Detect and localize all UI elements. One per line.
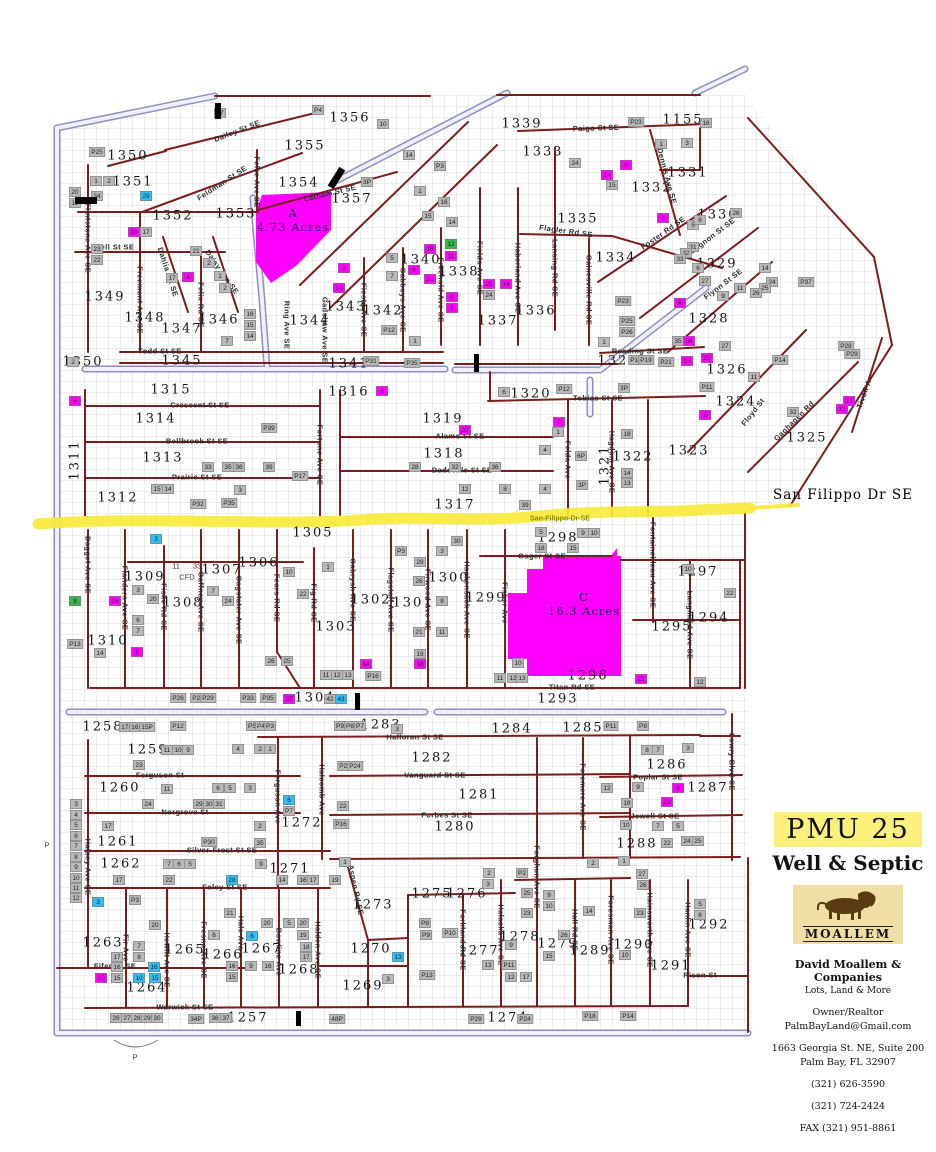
block-label: 1334: [595, 251, 636, 266]
lot-marker: 15: [567, 543, 579, 553]
lot-marker: 8: [436, 596, 448, 606]
lot-marker: P2: [516, 868, 528, 878]
lot-marker: 18: [535, 543, 547, 553]
block-label: 1314: [135, 412, 176, 427]
street-label: Halcomb Ave: [318, 764, 327, 815]
lot-marker: 3P: [618, 383, 630, 393]
block-label: 1316: [328, 385, 369, 400]
lot-marker: 12: [459, 484, 471, 494]
lot-marker: 5: [283, 918, 295, 928]
lot-marker: 23: [634, 908, 646, 918]
lot-marker: 6: [446, 292, 458, 302]
lot-marker: 39: [263, 462, 275, 472]
lot-marker: 3: [132, 585, 144, 595]
street-label: Hagdom Ave SE: [608, 431, 617, 494]
street-label: Forkland Rd SE: [459, 909, 468, 970]
lot-marker: 24: [222, 596, 234, 606]
lot-marker: P4: [312, 105, 324, 115]
block-label: 1352: [152, 209, 193, 224]
street-label: Ferguson Ave: [274, 770, 283, 824]
lot-marker: 9: [620, 160, 632, 170]
lot-marker: 9: [632, 782, 644, 792]
moallem-logo: MOALLEM: [793, 885, 903, 944]
lot-marker: 24: [483, 290, 495, 300]
block-label: 1312: [97, 491, 138, 506]
lot-marker: 14: [244, 331, 256, 341]
lot-marker: 18: [621, 429, 633, 439]
map-note: 33: [193, 562, 201, 571]
street-label: Fears Rd SE: [273, 574, 282, 623]
lot-marker: P9: [420, 930, 432, 940]
lot-marker: P12: [381, 325, 397, 335]
lot-marker: P35: [404, 358, 420, 368]
lot-marker: 11: [494, 673, 506, 683]
block-label: 1286: [646, 758, 687, 773]
logo-wordmark: MOALLEM: [803, 926, 893, 942]
street-label: Fortune Ave SE: [316, 425, 325, 486]
lot-marker: 4: [70, 810, 82, 820]
block-label: 1331: [667, 166, 708, 181]
street-label: Hall Rd SE: [571, 909, 580, 951]
lot-marker: 8: [499, 484, 511, 494]
lot-marker: P16: [333, 819, 349, 829]
lot-marker: 25: [483, 279, 495, 289]
street-label: Foremere Ave SE: [579, 763, 588, 831]
street-label: Gabrysh Ave SE: [349, 558, 358, 621]
lot-marker: 14: [94, 648, 106, 658]
street-label: Foresman Ave SE: [607, 895, 616, 964]
lot-marker: 18: [414, 659, 426, 669]
lot-marker: P31: [363, 356, 379, 366]
lot-marker: P25: [89, 147, 105, 157]
lot-marker: 3: [391, 724, 403, 734]
lot-marker: P7: [283, 806, 295, 816]
plat-map-page: 1356133911551350135513331351135413571331…: [0, 0, 936, 1152]
lot-marker: 10: [543, 901, 555, 911]
block-label: 1326: [706, 363, 747, 378]
sold-bar-marker: [296, 1011, 301, 1026]
phone-2: (321) 724-2424: [762, 1101, 934, 1112]
street-label: Gabboys Ave SE: [399, 267, 408, 332]
street-label: Felse Ave SE: [253, 156, 262, 207]
lot-marker: 34: [683, 336, 695, 346]
lot-marker: 3: [436, 546, 448, 556]
lot-marker: 26: [265, 656, 277, 666]
lot-marker: 9: [255, 859, 267, 869]
lot-marker: 12: [836, 404, 848, 414]
lot-marker: P24: [347, 761, 363, 771]
lot-marker: 20: [149, 920, 161, 930]
block-label: 1311: [68, 439, 83, 480]
san-filippo-onroad-label: San-Filippo-Dr-SE: [530, 516, 590, 523]
lot-marker: 18: [300, 942, 312, 952]
lot-marker: 9: [70, 862, 82, 872]
block-label: 1272: [281, 816, 322, 831]
street-label: Hainsworth Ave SE: [646, 892, 655, 967]
street-label: Lowry Blvd SE: [728, 733, 737, 791]
lot-marker: 16: [226, 961, 238, 971]
block-label: 1306: [238, 556, 279, 571]
lot-marker: 18: [128, 227, 140, 237]
lot-marker: 2: [254, 821, 266, 831]
lot-marker: 18: [621, 798, 633, 808]
street-label: Crescent St SE: [170, 401, 229, 410]
fax: FAX (321) 951-8861: [762, 1123, 934, 1134]
lot-marker: P13: [67, 639, 83, 649]
lot-marker: 5: [224, 783, 236, 793]
lot-marker: 21: [424, 274, 436, 284]
lot-marker: P3: [434, 161, 446, 171]
lot-marker: 1: [552, 427, 564, 437]
block-label: 1340: [400, 253, 441, 268]
lot-marker: 10: [377, 119, 389, 129]
company-name: David Moallem & Companies: [762, 958, 934, 984]
lot-marker: 7: [132, 626, 144, 636]
lot-marker: P3: [395, 546, 407, 556]
lot-marker: 24: [109, 596, 121, 606]
street-label: Fontainebleau Ave SE: [649, 522, 658, 608]
lot-marker: 17: [102, 821, 114, 831]
lot-marker: 9: [543, 890, 555, 900]
realtor-info-panel: PMU 25 Well & Septic MOALLEM David Moall…: [762, 812, 934, 1134]
lot-marker: P29: [844, 349, 860, 359]
block-label: 1351: [112, 175, 153, 190]
lot-marker: P30: [201, 837, 217, 847]
lot-marker: P7: [354, 721, 366, 731]
lot-marker: P37: [798, 277, 814, 287]
lot-marker: 7: [652, 745, 664, 755]
street-label: Fig Rd SE: [310, 583, 319, 622]
block-label: 1310: [87, 634, 128, 649]
lot-marker: 24: [569, 158, 581, 168]
lot-marker: 22: [297, 589, 309, 599]
street-label: Tobias St SE: [573, 394, 623, 403]
lot-marker: 6: [692, 263, 704, 273]
phone-1: (321) 626-3590: [762, 1079, 934, 1090]
lot-marker: 13: [482, 960, 494, 970]
street-label: Freehold Ave SE: [437, 257, 446, 322]
lot-marker: P14: [620, 1011, 636, 1021]
block-label: 1318: [423, 447, 464, 462]
lot-marker: 10: [588, 528, 600, 538]
well-septic-label: Well & Septic: [762, 851, 934, 875]
lot-marker: P25: [619, 316, 635, 326]
lot-marker: 18: [424, 244, 436, 254]
lot-marker: 10: [95, 973, 107, 983]
lot-marker: 28: [414, 557, 426, 567]
block-label: 1258: [82, 720, 123, 735]
block-label: 1293: [537, 692, 578, 707]
street-label: Lansing Rd SE: [551, 239, 560, 297]
lot-marker: 5: [70, 820, 82, 830]
lot-marker: 15P: [139, 722, 155, 732]
lot-marker: 21: [413, 627, 425, 637]
address-line1: 1663 Georgia St. NE, Suite 200: [762, 1043, 934, 1054]
pmu-title: PMU 25: [774, 812, 922, 847]
block-label: 1284: [491, 722, 532, 737]
block-label: 1305: [292, 526, 333, 541]
lot-marker: 30: [451, 536, 463, 546]
street-label: Halacka Ave SE: [497, 904, 506, 965]
lot-marker: 10: [70, 873, 82, 883]
lot-marker: P11: [603, 721, 618, 731]
lot-marker: 25: [521, 888, 533, 898]
block-label: 1353: [215, 207, 256, 222]
lot-marker: 11: [161, 784, 173, 794]
lot-marker: 4: [182, 272, 194, 282]
lot-marker: 2: [483, 868, 495, 878]
lot-marker: P23: [628, 117, 644, 127]
street-label: Fiesta Ave SE: [360, 283, 369, 337]
lot-marker: 13: [621, 478, 633, 488]
street-label: Rison St: [683, 971, 717, 980]
lot-marker: 10: [283, 567, 295, 577]
lot-marker: 5: [446, 303, 458, 313]
lot-marker: 15: [606, 180, 618, 190]
lot-marker: 21: [224, 908, 236, 918]
lot-marker: P23: [615, 296, 631, 306]
lot-marker: P11: [699, 382, 714, 392]
lot-marker: 9: [505, 940, 517, 950]
lot-marker: 28: [409, 462, 421, 472]
lot-marker: 6: [132, 615, 144, 625]
lot-marker: 14: [276, 875, 288, 885]
lot-marker: P26: [170, 693, 186, 703]
lot-marker: P10: [442, 928, 458, 938]
lot-marker: 11: [70, 883, 82, 893]
lot-marker: 14: [759, 263, 771, 273]
lot-marker: 8: [133, 952, 145, 962]
lot-marker: 39: [519, 500, 531, 510]
street-label: Haberland Ave SE: [514, 243, 523, 313]
lot-marker: P39: [261, 423, 277, 433]
lot-marker: P11: [501, 960, 516, 970]
lot-marker: 3: [657, 213, 669, 223]
block-label: 1354: [278, 176, 319, 191]
street-label: Ferguson St: [136, 771, 184, 780]
street-label: Fiske Rd SE: [160, 583, 169, 631]
lot-marker: 16: [438, 197, 450, 207]
block-label: 1355: [284, 139, 325, 154]
block-label: 1337: [477, 314, 518, 329]
lot-marker: 1: [414, 186, 426, 196]
block-label: 1328: [688, 312, 729, 327]
san-filippo-label: San Filippo Dr SE: [773, 487, 913, 503]
lot-marker: 22: [724, 588, 736, 598]
lot-marker: 27: [719, 341, 731, 351]
block-label: 1345: [161, 354, 202, 369]
block-label: 1335: [557, 212, 598, 227]
block-label: 1317: [434, 498, 475, 513]
lot-marker: 3P: [361, 177, 373, 187]
lot-marker: 1: [264, 744, 276, 754]
lot-marker: 15: [149, 973, 161, 983]
lot-marker: 9: [245, 961, 257, 971]
street-label: Flanders Ave SE: [121, 566, 130, 631]
lot-marker: 28: [226, 875, 238, 885]
lot-marker: 3: [234, 485, 246, 495]
lot-marker: 15: [422, 211, 434, 221]
owner-role: Owner/Realtor: [762, 1007, 934, 1018]
lot-marker: 2: [553, 417, 565, 427]
lot-marker: 19: [329, 875, 341, 885]
block-label: 1303: [315, 620, 356, 635]
company-sub: Lots, Land & More: [762, 986, 934, 996]
lot-marker: 21: [190, 246, 202, 256]
lot-marker: 1: [322, 562, 334, 572]
lot-marker: 13: [342, 670, 354, 680]
lot-marker: 23: [91, 244, 103, 254]
lot-marker: 33: [202, 462, 214, 472]
block-label: 1296: [567, 669, 608, 684]
lot-marker: P8: [419, 918, 431, 928]
lot-marker: 4: [539, 445, 551, 455]
block-label: 1285: [562, 721, 603, 736]
lot-marker: 6: [212, 783, 224, 793]
street-label: Dagget Ave SE: [84, 536, 93, 594]
block-label: 1263: [82, 936, 123, 951]
lot-marker: 1: [339, 857, 351, 867]
lot-marker: 27: [636, 869, 648, 879]
lot-marker: 17: [300, 952, 312, 962]
lot-marker: 6: [70, 831, 82, 841]
lot-marker: 15: [244, 320, 256, 330]
parcel-A-label: A4.73 Acres: [257, 206, 329, 234]
lot-marker: P35: [221, 498, 237, 508]
lot-marker: 17: [113, 875, 125, 885]
lot-marker: 36: [233, 462, 245, 472]
lot-marker: 8: [408, 265, 420, 275]
lot-marker: 20: [69, 187, 81, 197]
lot-marker: 12: [694, 677, 706, 687]
street-label: Gagstater Ave SE: [235, 576, 244, 645]
block-label: 1322: [612, 450, 653, 465]
street-label: Silver-Frost St SE: [187, 846, 258, 855]
lot-marker: 3: [70, 799, 82, 809]
lot-marker: 31: [213, 799, 225, 809]
street-label: Forbes St SE: [421, 811, 472, 820]
lot-marker: 3: [150, 534, 162, 544]
lot-marker: 7: [221, 336, 233, 346]
lot-marker: 6: [376, 386, 388, 396]
lot-marker: 1: [618, 856, 630, 866]
lot-marker: 16: [244, 309, 256, 319]
block-label: 1320: [510, 387, 551, 402]
lot-marker: 16: [262, 961, 274, 971]
block-label: 1315: [150, 383, 191, 398]
lot-marker: 24: [142, 799, 154, 809]
lot-marker: 7: [652, 821, 664, 831]
lot-marker: 12: [445, 239, 457, 249]
lot-marker: 22: [163, 875, 175, 885]
lot-marker: P29: [200, 693, 216, 703]
block-label: 1294: [688, 611, 729, 626]
block-label: 1319: [422, 412, 463, 427]
lot-marker: 9: [717, 291, 729, 301]
lot-marker: P8: [637, 721, 649, 731]
block-label: 1350: [107, 149, 148, 164]
sold-bar-marker: [75, 197, 97, 204]
street-label: Jewell St SE: [631, 812, 680, 821]
lot-marker: 15: [543, 951, 555, 961]
lot-marker: 8: [69, 596, 81, 606]
lot-marker: 17: [140, 227, 152, 237]
lot-marker: 34P: [188, 1014, 204, 1024]
lot-marker: 2: [338, 263, 350, 273]
lot-marker: 6: [208, 930, 220, 940]
lot-marker: 17: [166, 273, 178, 283]
lot-marker: 14: [601, 170, 613, 180]
lot-marker: P19: [638, 355, 654, 365]
lot-marker: 26: [413, 576, 425, 586]
lot-marker: 22: [661, 797, 673, 807]
lot-marker: 15: [226, 972, 238, 982]
block-label: 1257: [227, 1011, 268, 1026]
block-label: 1349: [84, 290, 125, 305]
lot-marker: 23: [681, 356, 693, 366]
lot-marker: 20: [147, 594, 159, 604]
lot-marker: 1: [214, 271, 226, 281]
lot-marker: 26: [750, 288, 762, 298]
lot-marker: 2: [219, 283, 231, 293]
street-label: Titan Rd SE: [549, 683, 595, 692]
lot-marker: 4: [232, 744, 244, 754]
lot-marker: P24: [517, 1014, 533, 1024]
lot-marker: 6P: [575, 451, 587, 461]
lot-marker: P3: [129, 895, 141, 905]
lot-marker: 6: [694, 215, 706, 225]
lot-marker: 30: [151, 1013, 163, 1023]
email: PalmBayLand@Gmail.com: [762, 1021, 934, 1032]
block-label: 1269: [342, 979, 383, 994]
sold-bar-marker: [355, 693, 360, 710]
lot-marker: P3: [264, 721, 276, 731]
map-note: CFD: [179, 573, 194, 582]
lot-marker: 6: [246, 931, 258, 941]
lot-marker: 6: [283, 795, 295, 805]
street-label: Prairie St SE: [172, 473, 222, 482]
lot-marker: 3: [681, 138, 693, 148]
lot-marker: 11: [748, 372, 760, 382]
lot-marker: 19: [414, 649, 426, 659]
block-label: 1280: [434, 820, 475, 835]
lot-marker: 25: [701, 353, 713, 363]
lot-marker: 11: [734, 283, 746, 293]
map-note: P: [44, 841, 49, 850]
street-label: Todd St SE: [138, 347, 181, 356]
lot-marker: 16: [111, 962, 123, 972]
block-label: 1339: [501, 117, 542, 132]
block-label: 1287: [687, 781, 728, 796]
street-label: Gainesville Rd SE: [585, 255, 594, 326]
lot-marker: 4: [539, 484, 551, 494]
block-label: 1333: [522, 145, 563, 160]
lot-marker: 32: [449, 462, 461, 472]
lot-marker: P16: [365, 671, 381, 681]
lot-marker: 17: [307, 875, 319, 885]
lot-marker: 1: [409, 336, 421, 346]
block-label: 1325: [786, 431, 827, 446]
lot-marker: 7: [386, 271, 398, 281]
street-label: Hale Ave: [237, 916, 246, 950]
lot-marker: 1: [90, 176, 102, 186]
lot-marker: P21: [658, 357, 674, 367]
street-label: Bowline Ave: [275, 928, 284, 976]
lot-marker: 13: [516, 673, 528, 683]
lot-marker: 14: [360, 659, 372, 669]
street-label: Paigo St SE: [573, 123, 620, 134]
lot-marker: 23: [133, 760, 145, 770]
